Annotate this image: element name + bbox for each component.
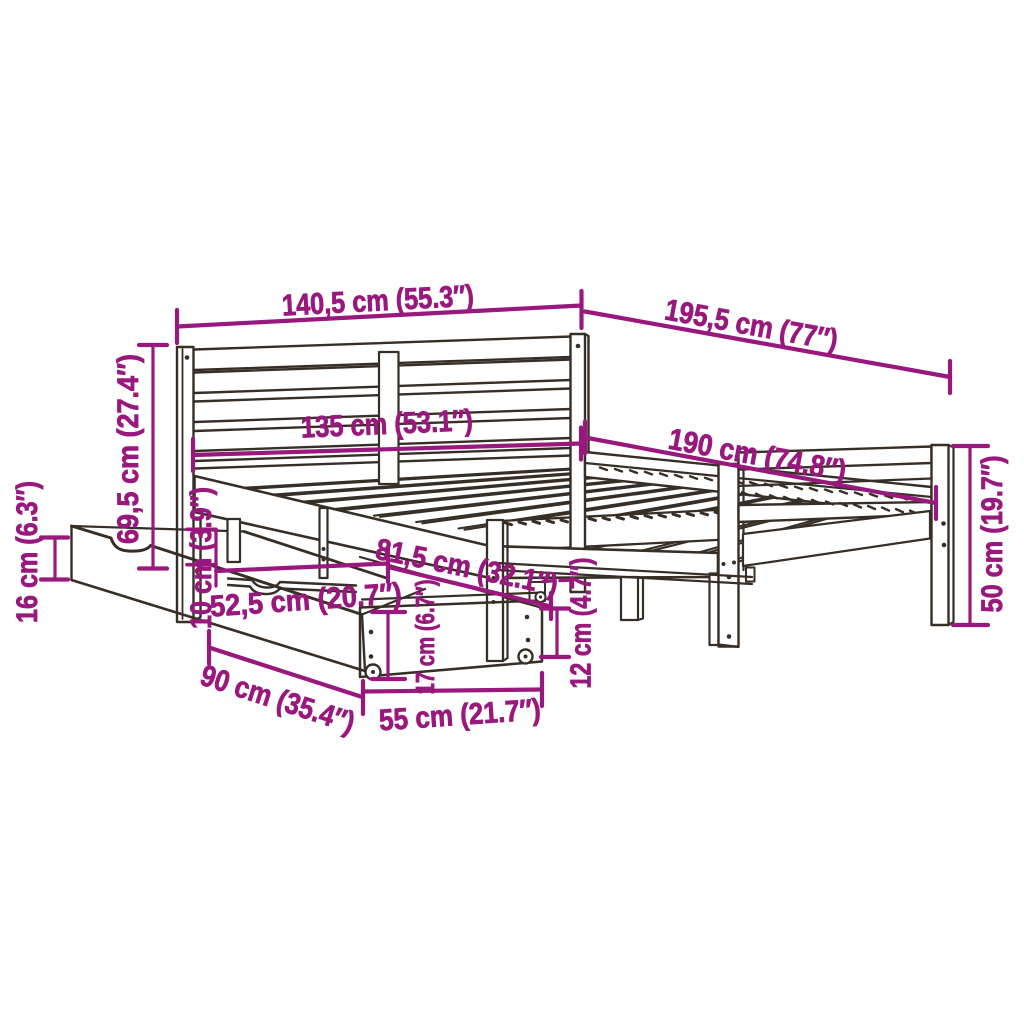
svg-text:17 cm (6.7″): 17 cm (6.7″) [410, 580, 440, 695]
svg-text:50 cm (19.7″): 50 cm (19.7″) [976, 456, 1009, 613]
svg-text:69,5 cm (27.4″): 69,5 cm (27.4″) [112, 354, 145, 544]
svg-text:12 cm (4.7″): 12 cm (4.7″) [566, 558, 598, 689]
svg-text:16 cm (6.3″): 16 cm (6.3″) [11, 481, 44, 623]
